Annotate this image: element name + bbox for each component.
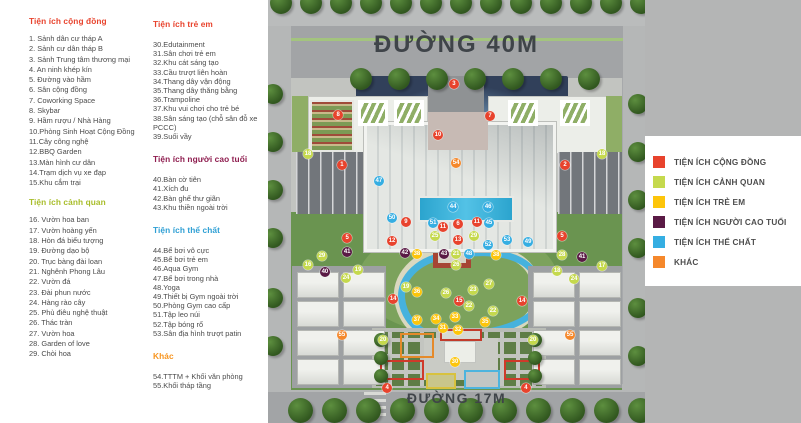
map-marker: 35 xyxy=(480,317,490,327)
map-marker: 45 xyxy=(484,218,494,228)
amenity-panel: Tiện ích cộng đồng 1. Sảnh dân cư tháp A… xyxy=(0,0,268,423)
map-marker: 11 xyxy=(438,222,448,232)
section-title-khac: Khác xyxy=(153,351,266,361)
tree-icon xyxy=(502,68,524,90)
map-marker: 3 xyxy=(449,79,459,89)
map-marker: 17 xyxy=(597,261,607,271)
map-marker: 2 xyxy=(560,160,570,170)
map-marker: 8 xyxy=(333,110,343,120)
amenity-item: 23. Đài phun nước xyxy=(29,288,150,298)
map-marker: 7 xyxy=(485,111,495,121)
amenity-item: 24. Hàng rào cây xyxy=(29,298,150,308)
map-marker: 29 xyxy=(469,231,479,241)
map-marker: 6 xyxy=(453,219,463,229)
amenity-item: 15.Khu cắm trại xyxy=(29,178,150,188)
court-blue xyxy=(464,370,500,389)
amenity-item: 17. Vườn hoàng yến xyxy=(29,226,150,236)
map-marker: 36 xyxy=(412,287,422,297)
amenity-item: 10.Phòng Sinh Hoạt Cộng Đồng xyxy=(29,127,150,137)
legend-row: TIỆN ÍCH THỂ CHẤT xyxy=(653,236,801,248)
tree-icon xyxy=(528,351,542,365)
lawn-edge-left xyxy=(292,96,308,152)
legend-row: TIỆN ÍCH NGƯỜI CAO TUỔI xyxy=(653,216,801,228)
map-marker: 55 xyxy=(337,330,347,340)
amenity-item: 9. Hầm rượu / Nhà Hàng xyxy=(29,116,150,126)
amenity-item: 37.Khu vui chơi cho trẻ bé xyxy=(153,104,266,113)
sidewalk-left xyxy=(268,26,291,384)
map-marker: 27 xyxy=(484,279,494,289)
flower-garden xyxy=(310,100,354,152)
amenity-item: 21. Nghênh Phong Lâu xyxy=(29,267,150,277)
legend: TIỆN ÍCH CỘNG ĐỒNG TIỆN ÍCH CẢNH QUAN TI… xyxy=(645,136,801,286)
legend-swatch xyxy=(653,176,665,188)
section-treem: Tiện ích trẻ em 30.Edutainment31.Sân chơ… xyxy=(153,19,266,141)
amenity-item: 29. Chòi hoa xyxy=(29,349,150,359)
amenity-item: 51.Tập leo núi xyxy=(153,310,266,319)
shophouse-unit xyxy=(533,301,575,327)
map-marker: 28 xyxy=(557,250,567,260)
amenity-item: 5. Đường vào hầm xyxy=(29,75,150,85)
map-marker: 52 xyxy=(483,240,493,250)
legend-label: TIỆN ÍCH TRẺ EM xyxy=(674,198,745,207)
amenity-item: 16. Vườn hoa ban xyxy=(29,215,150,225)
map-marker: 1 xyxy=(337,160,347,170)
section-title-congdong: Tiện ích cộng đồng xyxy=(29,16,150,26)
map-marker: 42 xyxy=(400,248,410,258)
legend-swatch xyxy=(653,216,665,228)
amenity-item: 50.Phòng Gym cao cấp xyxy=(153,301,266,310)
amenity-column-2: Tiện ích trẻ em 30.Edutainment31.Sân chơ… xyxy=(153,19,266,403)
tree-icon xyxy=(628,238,645,258)
map-marker: 46 xyxy=(483,202,493,212)
map-marker: 10 xyxy=(433,130,443,140)
map-marker: 20 xyxy=(378,335,388,345)
amenity-item: 13.Màn hình cư dân xyxy=(29,158,150,168)
amenity-item: 34.Thang dây vận động xyxy=(153,77,266,86)
map-marker: 32 xyxy=(453,325,463,335)
section-canhquan: Tiện ích cảnh quan 16. Vườn hoa ban17. V… xyxy=(29,197,150,359)
map-marker: 51 xyxy=(428,218,438,228)
tree-icon xyxy=(388,68,410,90)
legend-label: TIỆN ÍCH CỘNG ĐỒNG xyxy=(674,158,766,167)
road-top-label: ĐƯỜNG 40M xyxy=(268,31,645,59)
amenity-item: 38.Sân sáng tạo (chỗ sân đỗ xe PCCC) xyxy=(153,114,266,132)
amenity-item: 36.Trampoline xyxy=(153,95,266,104)
map-marker: 50 xyxy=(387,213,397,223)
shophouse-unit xyxy=(579,330,621,356)
amenity-item: 31.Sân chơi trẻ em xyxy=(153,49,266,58)
map-marker: 12 xyxy=(387,236,397,246)
map-marker: 16 xyxy=(303,260,313,270)
amenity-item: 41.Xích đu xyxy=(153,184,266,193)
legend-row: TIỆN ÍCH CẢNH QUAN xyxy=(653,176,801,188)
road-bottom-label: ĐƯỜNG 17M xyxy=(268,390,645,406)
amenity-item: 11.Cây công nghệ xyxy=(29,137,150,147)
shophouse-unit xyxy=(297,359,339,385)
lawn-edge-right xyxy=(606,96,622,152)
map-marker: 13 xyxy=(453,235,463,245)
legend-swatch xyxy=(653,156,665,168)
amenity-list-caotuoi: 40.Bàn cờ tiên41.Xích đu42.Bàn ghế thư g… xyxy=(153,175,266,212)
map-marker: 41 xyxy=(577,252,587,262)
map-marker: 47 xyxy=(374,176,384,186)
amenity-item: 46.Aqua Gym xyxy=(153,264,266,273)
map-marker: 54 xyxy=(451,158,461,168)
amenity-column-1: Tiện ích cộng đồng 1. Sảnh dân cư tháp A… xyxy=(29,16,150,369)
shophouse-unit xyxy=(297,330,339,356)
map-marker: 38 xyxy=(491,250,501,260)
map-marker: 4 xyxy=(382,383,392,393)
map-marker: 30 xyxy=(450,357,460,367)
tree-icon xyxy=(540,68,562,90)
legend-row: KHÁC xyxy=(653,256,801,268)
amenity-item: 6. Sân cộng đồng xyxy=(29,85,150,95)
map-marker: 20 xyxy=(528,335,538,345)
map-marker: 38 xyxy=(412,249,422,259)
tree-icon xyxy=(350,68,372,90)
map-marker: 5 xyxy=(557,231,567,241)
amenity-item: 8. Skybar xyxy=(29,106,150,116)
map-marker: 4 xyxy=(521,383,531,393)
tree-icon xyxy=(628,190,645,210)
legend-swatch xyxy=(653,196,665,208)
legend-swatch xyxy=(653,256,665,268)
map-marker: 9 xyxy=(401,217,411,227)
court-yellow xyxy=(426,373,456,389)
amenity-item: 25. Phù điêu nghệ thuật xyxy=(29,308,150,318)
map-marker: 29 xyxy=(317,251,327,261)
amenity-list-congdong: 1. Sảnh dân cư tháp A2. Sảnh cư dân tháp… xyxy=(29,34,150,188)
section-thechat: Tiện ích thể chất 44.Bể bơi vô cực45.Bể … xyxy=(153,225,266,338)
amenity-item: 26. Thác tràn xyxy=(29,318,150,328)
tree-icon xyxy=(464,68,486,90)
amenity-item: 14.Trạm dịch vụ xe đạp xyxy=(29,168,150,178)
legend-swatch xyxy=(653,236,665,248)
legend-label: TIỆN ÍCH THỂ CHẤT xyxy=(674,238,756,247)
amenity-item: 30.Edutainment xyxy=(153,40,266,49)
roof-trellis xyxy=(394,100,424,126)
amenity-item: 55.Khối tháp tầng xyxy=(153,381,266,390)
map-marker: 41 xyxy=(342,247,352,257)
tree-icon xyxy=(426,68,448,90)
section-title-canhquan: Tiện ích cảnh quan xyxy=(29,197,150,207)
map-marker: 55 xyxy=(565,330,575,340)
map-marker: 22 xyxy=(488,306,498,316)
amenity-list-thechat: 44.Bể bơi vô cực45.Bể bơi trẻ em46.Aqua … xyxy=(153,246,266,338)
shophouse-unit xyxy=(579,301,621,327)
amenity-item: 33.Cầu trượt liên hoàn xyxy=(153,68,266,77)
amenity-list-khac: 54.TTTM + Khối văn phòng55.Khối tháp tần… xyxy=(153,372,266,390)
legend-label: KHÁC xyxy=(674,258,698,267)
map-marker: 19 xyxy=(401,282,411,292)
legend-row: TIỆN ÍCH TRẺ EM xyxy=(653,196,801,208)
tree-icon xyxy=(374,369,388,383)
amenity-item: 1. Sảnh dân cư tháp A xyxy=(29,34,150,44)
roof-trellis xyxy=(508,100,538,126)
amenity-item: 39.Suối vầy xyxy=(153,132,266,141)
court-orange xyxy=(400,333,434,358)
amenity-item: 28. Garden of love xyxy=(29,339,150,349)
shophouse-unit xyxy=(579,359,621,385)
shophouse-unit xyxy=(297,301,339,327)
edutainment-building xyxy=(444,341,476,363)
tree-icon xyxy=(528,369,542,383)
parking-left xyxy=(296,152,364,214)
amenity-item: 20. Trục bàng đài loan xyxy=(29,257,150,267)
amenity-item: 12.BBQ Garden xyxy=(29,147,150,157)
roof-trellis xyxy=(358,100,388,126)
amenity-item: 44.Bể bơi vô cực xyxy=(153,246,266,255)
amenity-item: 45.Bể bơi trẻ em xyxy=(153,255,266,264)
section-title-thechat: Tiện ích thể chất xyxy=(153,225,266,235)
amenity-item: 43.Khu thiền ngoài trời xyxy=(153,203,266,212)
tree-icon xyxy=(374,351,388,365)
section-congdong: Tiện ích cộng đồng 1. Sảnh dân cư tháp A… xyxy=(29,16,150,188)
amenity-item: 4. An ninh khép kín xyxy=(29,65,150,75)
amenity-item: 49.Thiết bị Gym ngoài trời xyxy=(153,292,266,301)
section-title-caotuoi: Tiện ích người cao tuổi xyxy=(153,154,266,164)
shophouse-unit xyxy=(297,272,339,298)
map-marker: 49 xyxy=(523,237,533,247)
section-title-treem: Tiện ích trẻ em xyxy=(153,19,266,29)
map-marker: 31 xyxy=(438,323,448,333)
amenity-list-treem: 30.Edutainment31.Sân chơi trẻ em32.Khu c… xyxy=(153,40,266,141)
amenity-item: 18. Hòn đá biểu tượng xyxy=(29,236,150,246)
map-marker: 18 xyxy=(597,149,607,159)
amenity-item: 48.Yoga xyxy=(153,283,266,292)
shophouse-unit xyxy=(579,272,621,298)
tree-icon xyxy=(628,142,645,162)
legend-panel: TIỆN ÍCH CỘNG ĐỒNG TIỆN ÍCH CẢNH QUAN TI… xyxy=(645,0,801,423)
legend-label: TIỆN ÍCH NGƯỜI CAO TUỔI xyxy=(674,218,787,227)
map-marker: 33 xyxy=(450,312,460,322)
map-marker: 53 xyxy=(502,235,512,245)
amenity-item: 54.TTTM + Khối văn phòng xyxy=(153,372,266,381)
site-plan: ĐƯỜNG 40M ĐƯỜNG 17M 3 8 7 10 54 1 2 18 1… xyxy=(268,0,645,423)
map-marker: 40 xyxy=(320,267,330,277)
tree-icon xyxy=(628,298,645,318)
amenity-item: 27. Vườn hoa xyxy=(29,329,150,339)
amenity-item: 40.Bàn cờ tiên xyxy=(153,175,266,184)
amenity-item: 3. Sảnh Trung tâm thương mại xyxy=(29,55,150,65)
map-marker: 37 xyxy=(412,315,422,325)
amenity-item: 19. Đường dạo bộ xyxy=(29,246,150,256)
section-khac: Khác 54.TTTM + Khối văn phòng55.Khối thá… xyxy=(153,351,266,390)
amenity-item: 53.Sân địa hình trượt patin xyxy=(153,329,266,338)
map-marker: 5 xyxy=(342,233,352,243)
map-marker: 18 xyxy=(303,149,313,159)
amenity-item: 42.Bàn ghế thư giãn xyxy=(153,194,266,203)
legend-row: TIỆN ÍCH CỘNG ĐỒNG xyxy=(653,156,801,168)
amenity-item: 47.Bể bơi trong nhà xyxy=(153,274,266,283)
tree-icon xyxy=(578,68,600,90)
map-marker: 24 xyxy=(341,273,351,283)
roof-trellis xyxy=(560,100,590,126)
legend-label: TIỆN ÍCH CẢNH QUAN xyxy=(674,178,765,187)
map-marker: 22 xyxy=(464,301,474,311)
map-marker: 26 xyxy=(451,260,461,270)
amenity-item: 32.Khu cát sáng tạo xyxy=(153,58,266,67)
amenity-item: 2. Sảnh cư dân tháp B xyxy=(29,44,150,54)
map-marker: 48 xyxy=(464,249,474,259)
map-marker: 44 xyxy=(448,202,458,212)
map-marker: 18 xyxy=(552,266,562,276)
amenity-item: 35.Thang dây thăng bằng xyxy=(153,86,266,95)
amenity-item: 7. Coworking Space xyxy=(29,96,150,106)
map-marker: 43 xyxy=(439,249,449,259)
amenity-item: 22. Vườn đá xyxy=(29,277,150,287)
map-marker: 26 xyxy=(441,288,451,298)
map-marker: 14 xyxy=(388,294,398,304)
tree-icon xyxy=(628,94,645,114)
map-marker: 23 xyxy=(468,285,478,295)
map-marker: 14 xyxy=(517,296,527,306)
map-marker: 11 xyxy=(472,217,482,227)
shophouse-unit xyxy=(343,301,385,327)
amenity-item: 52.Tập bóng rổ xyxy=(153,320,266,329)
amenity-list-canhquan: 16. Vườn hoa ban17. Vườn hoàng yến18. Hò… xyxy=(29,215,150,359)
tree-icon xyxy=(628,346,645,366)
map-marker: 21 xyxy=(451,249,461,259)
map-marker: 24 xyxy=(569,274,579,284)
map-marker: 15 xyxy=(454,296,464,306)
map-marker: 19 xyxy=(353,265,363,275)
section-caotuoi: Tiện ích người cao tuổi 40.Bàn cờ tiên41… xyxy=(153,154,266,212)
map-marker: 25 xyxy=(430,231,440,241)
